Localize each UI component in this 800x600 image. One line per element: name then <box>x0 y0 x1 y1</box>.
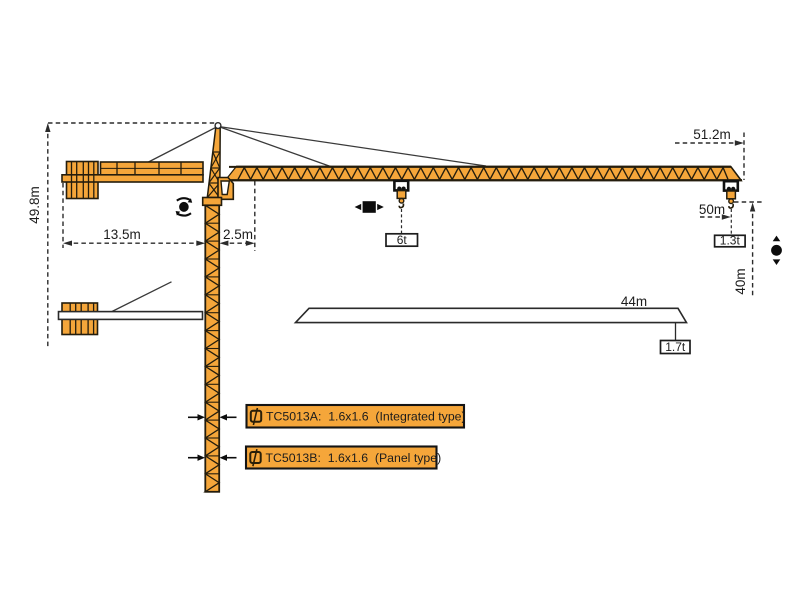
svg-text:1.7t: 1.7t <box>665 340 686 354</box>
svg-text:40m: 40m <box>733 268 748 294</box>
svg-text:50m: 50m <box>699 202 725 217</box>
svg-text:51.2m: 51.2m <box>693 127 731 142</box>
svg-text:TC5013B: 1.6x1.6 (Panel type: TC5013B: 1.6x1.6 (Panel type) <box>266 451 442 465</box>
svg-text:49.8m: 49.8m <box>27 186 42 224</box>
svg-text:1.3t: 1.3t <box>720 234 741 248</box>
svg-text:2.5m: 2.5m <box>223 227 253 242</box>
svg-text:13.5m: 13.5m <box>103 227 141 242</box>
svg-text:TC5013A: 1.6x1.6 (Integrated: TC5013A: 1.6x1.6 (Integrated type) <box>266 410 466 424</box>
svg-text:6t: 6t <box>397 233 408 247</box>
svg-text:44m: 44m <box>621 294 647 309</box>
